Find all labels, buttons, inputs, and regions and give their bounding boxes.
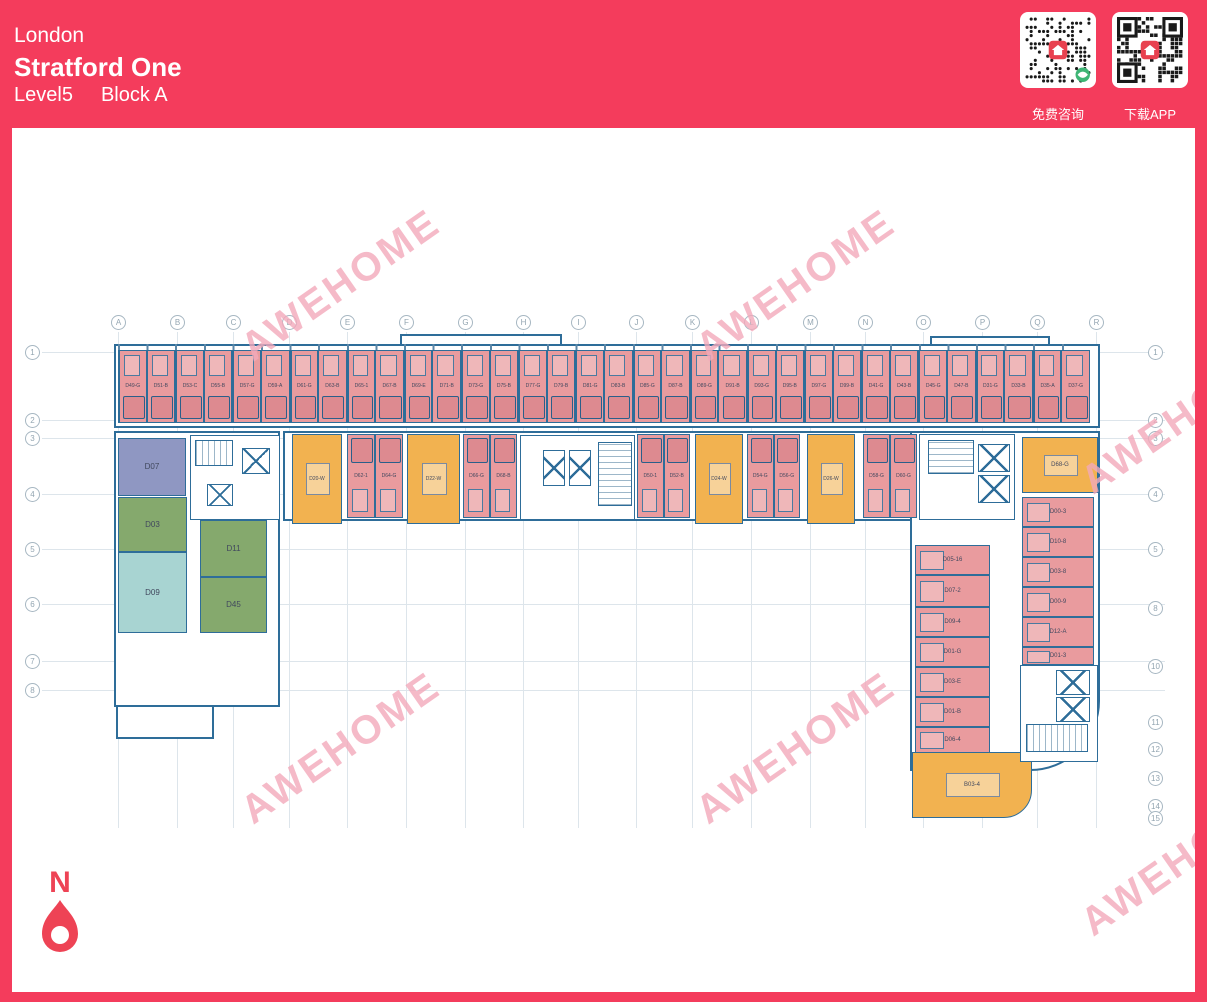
room-label: D85-G [640,384,655,389]
room-label: D05-16 [943,557,963,563]
room-label: D89-G [697,384,712,389]
unit-room: D58-G [863,434,890,518]
grid-row-marker-left: 6 [25,597,40,612]
kitchen-room: D20-W [292,434,342,524]
room-label: D12-A [1049,629,1066,635]
room-label: D58-G [869,474,884,479]
unit-room: D56-G [774,434,801,518]
stair-icon [1026,724,1088,752]
grid-row-marker-left: 4 [25,487,40,502]
wing-room: D11 [200,520,267,577]
unit-room: D62-1 [347,434,375,518]
room-label: D00-3 [1050,509,1066,515]
unit-room: D49-G [118,350,147,423]
building-outline [116,705,214,739]
room-label: D52-B [670,474,684,479]
room-label: D95-B [783,384,797,389]
grid-column-marker: N [858,315,873,330]
qr-consult-label: 免费咨询 [1020,104,1096,123]
grid-row-marker-right: 8 [1148,601,1163,616]
room-label: D66-G [469,474,484,479]
north-compass: N [30,868,90,959]
unit-room: D37-G [1061,350,1090,423]
room-label: D49-G [125,384,140,389]
room-label: D31-G [983,384,998,389]
room-label: D22-W [426,477,442,482]
room-label: D26-W [823,477,839,482]
location-pin-icon [38,898,82,954]
unit-room: D85-G [633,350,662,423]
grid-column-marker: O [916,315,931,330]
room-label: D07 [145,463,160,471]
unit-room: D09-4 [915,607,990,637]
floorplan-canvas: ABCDEFGHIJKLMNOPQR1234567812345810111213… [12,128,1195,992]
room-label: D47-B [954,384,968,389]
room-label: D67-B [382,384,396,389]
grid-column-marker: C [226,315,241,330]
room-label: D73-G [468,384,483,389]
wing-room: D07 [118,438,186,496]
unit-room: D31-G [976,350,1005,423]
room-label: D20-W [309,477,325,482]
room-label: D69-E [412,384,426,389]
room-label: D79-B [554,384,568,389]
elevator-icon [569,450,591,486]
elevator-icon [543,450,565,486]
unit-room: D95-B [776,350,805,423]
elevator-icon [242,448,270,474]
grid-row-marker-right: 11 [1148,715,1163,730]
room-label: D97-G [812,384,827,389]
unit-room: D60-G [890,434,917,518]
elevator-icon [1056,697,1090,722]
grid-row-marker-left: 8 [25,683,40,698]
room-label: D57-G [240,384,255,389]
unit-room: D01-3 [1022,647,1094,665]
room-label: D87-B [668,384,682,389]
grid-row-marker-right: 13 [1148,771,1163,786]
unit-room: D33-B [1004,350,1033,423]
unit-room: D79-B [547,350,576,423]
room-label: D45-G [926,384,941,389]
unit-room: D68-B [490,434,517,518]
grid-row-marker-left: 7 [25,654,40,669]
room-label: D01-B [944,709,961,715]
unit-room: D67-B [375,350,404,423]
grid-column-marker: E [340,315,355,330]
room-label: D06-4 [944,737,960,743]
unit-room: D03-E [915,667,990,697]
unit-room: D71-B [432,350,461,423]
grid-column-marker: J [629,315,644,330]
unit-room: D97-G [804,350,833,423]
grid-row-marker-left: 1 [25,345,40,360]
room-label: D83-B [611,384,625,389]
room-label: D00-9 [1050,599,1066,605]
level-block-label: Level5Block A [14,84,196,107]
grid-row-marker-right: 15 [1148,811,1163,826]
room-label: D07-2 [944,588,960,594]
north-label: N [30,868,90,898]
unit-room: D63-B [318,350,347,423]
room-label: D81-G [583,384,598,389]
room-label: D45 [226,601,241,609]
room-label: D01-3 [1050,653,1066,659]
grid-column-marker: B [170,315,185,330]
grid-column-marker: F [399,315,414,330]
unit-room: D43-B [890,350,919,423]
room-label: D64-G [382,474,397,479]
grid-column-marker: H [516,315,531,330]
grid-row-marker-right: 12 [1148,742,1163,757]
project-title: Stratford One [14,52,182,83]
room-label: D99-B [840,384,854,389]
unit-room: D05-16 [915,545,990,575]
kitchen-room: D26-W [807,434,855,524]
unit-room: D66-G [463,434,490,518]
unit-room: D01-G [915,637,990,667]
unit-room: D07-2 [915,575,990,607]
room-label: D37-G [1068,384,1083,389]
room-label: D03-E [944,679,961,685]
wing-room: D45 [200,577,267,633]
room-label: D10-8 [1050,539,1066,545]
grid-column-marker: M [803,315,818,330]
unit-room: D10-8 [1022,527,1094,557]
unit-room: D55-B [204,350,233,423]
room-label: D54-G [753,474,768,479]
watermark-text: AWEHOME [1073,775,1195,945]
stair-icon [195,440,233,466]
room-label: D68-B [496,474,510,479]
room-label: D59-A [268,384,282,389]
unit-room: D50-1 [637,434,664,518]
room-label: D43-B [897,384,911,389]
elevator-icon [978,444,1010,472]
wing-room: D03 [118,497,187,552]
grid-column-marker: A [111,315,126,330]
unit-room: D65-1 [347,350,376,423]
unit-room: D81-G [575,350,604,423]
room-label: D61-G [297,384,312,389]
stair-icon [928,440,974,474]
unit-room: D93-G [747,350,776,423]
grid-column-marker: Q [1030,315,1045,330]
grid-row-marker-left: 3 [25,431,40,446]
kitchen-room: D24-W [695,434,743,524]
qr-download-label: 下载APP [1112,104,1188,123]
unit-room: D54-G [747,434,774,518]
grid-row-marker-right: 10 [1148,659,1163,674]
unit-room: D87-B [661,350,690,423]
room-label: D33-B [1011,384,1025,389]
unit-room: D47-B [947,350,976,423]
room-label: D91-B [726,384,740,389]
grid-column-marker: R [1089,315,1104,330]
unit-room: D99-B [833,350,862,423]
room-label: B03-4 [964,782,980,788]
room-label: D09 [145,589,160,597]
grid-column-marker: G [458,315,473,330]
room-label: D68-G [1051,462,1069,468]
level-label: Level5 [14,84,73,106]
city-label: London [14,24,84,48]
unit-room: D00-3 [1022,497,1094,527]
grid-column-marker: P [975,315,990,330]
unit-room: D73-G [461,350,490,423]
block-label: Block A [101,84,168,106]
room-label: D63-B [325,384,339,389]
grid-row-marker-left: 2 [25,413,40,428]
unit-room: D77-G [518,350,547,423]
room-label: D56-G [779,474,794,479]
room-label: D01-G [944,649,962,655]
room-label: D50-1 [643,474,657,479]
unit-room: D75-B [490,350,519,423]
room-label: D03 [145,521,160,529]
stair-icon [598,442,632,506]
wechat-qr-icon[interactable] [1020,12,1096,88]
unit-room: D64-G [375,434,403,518]
room-label: D51-B [154,384,168,389]
unit-room: D01-B [915,697,990,727]
room-label: D03-8 [1050,569,1066,575]
watermark-text: AWEHOME [688,663,904,833]
room-label: D62-1 [354,474,368,479]
room-label: D24-W [711,477,727,482]
unit-room: D12-A [1022,617,1094,647]
unit-room: D35-A [1033,350,1062,423]
unit-room: D00-9 [1022,587,1094,617]
unit-room: D03-8 [1022,557,1094,587]
kitchen-room: B03-4 [912,752,1032,818]
room-label: D60-G [896,474,911,479]
unit-room: D41-G [861,350,890,423]
room-label: D41-G [869,384,884,389]
room-label: D35-A [1041,384,1055,389]
unit-room: D69-E [404,350,433,423]
header-bar: London Stratford One Level5Block A 免费咨询 … [0,0,1207,128]
grid-row-marker-right: 5 [1148,542,1163,557]
room-label: D11 [226,545,240,553]
kitchen-room: D22-W [407,434,460,524]
room-label: D55-B [211,384,225,389]
wing-room: D09 [118,552,187,633]
room-label: D77-G [526,384,541,389]
room-label: D75-B [497,384,511,389]
unit-room: D61-G [290,350,319,423]
grid-row-marker-left: 5 [25,542,40,557]
unit-room: D45-G [918,350,947,423]
unit-room: D53-C [175,350,204,423]
grid-row-marker-right: 1 [1148,345,1163,360]
room-label: D93-G [754,384,769,389]
grid-column-marker: I [571,315,586,330]
elevator-icon [207,484,233,506]
unit-room: D83-B [604,350,633,423]
room-label: D71-B [440,384,454,389]
unit-room: D52-B [664,434,691,518]
room-label: D09-4 [944,619,960,625]
grid-row-marker-right: 4 [1148,487,1163,502]
room-label: D65-1 [355,384,369,389]
elevator-icon [978,475,1010,503]
app-download-qr-icon[interactable] [1112,12,1188,88]
elevator-icon [1056,670,1090,695]
unit-room: D06-4 [915,727,990,753]
room-label: D53-C [183,384,197,389]
unit-room: D51-B [147,350,176,423]
